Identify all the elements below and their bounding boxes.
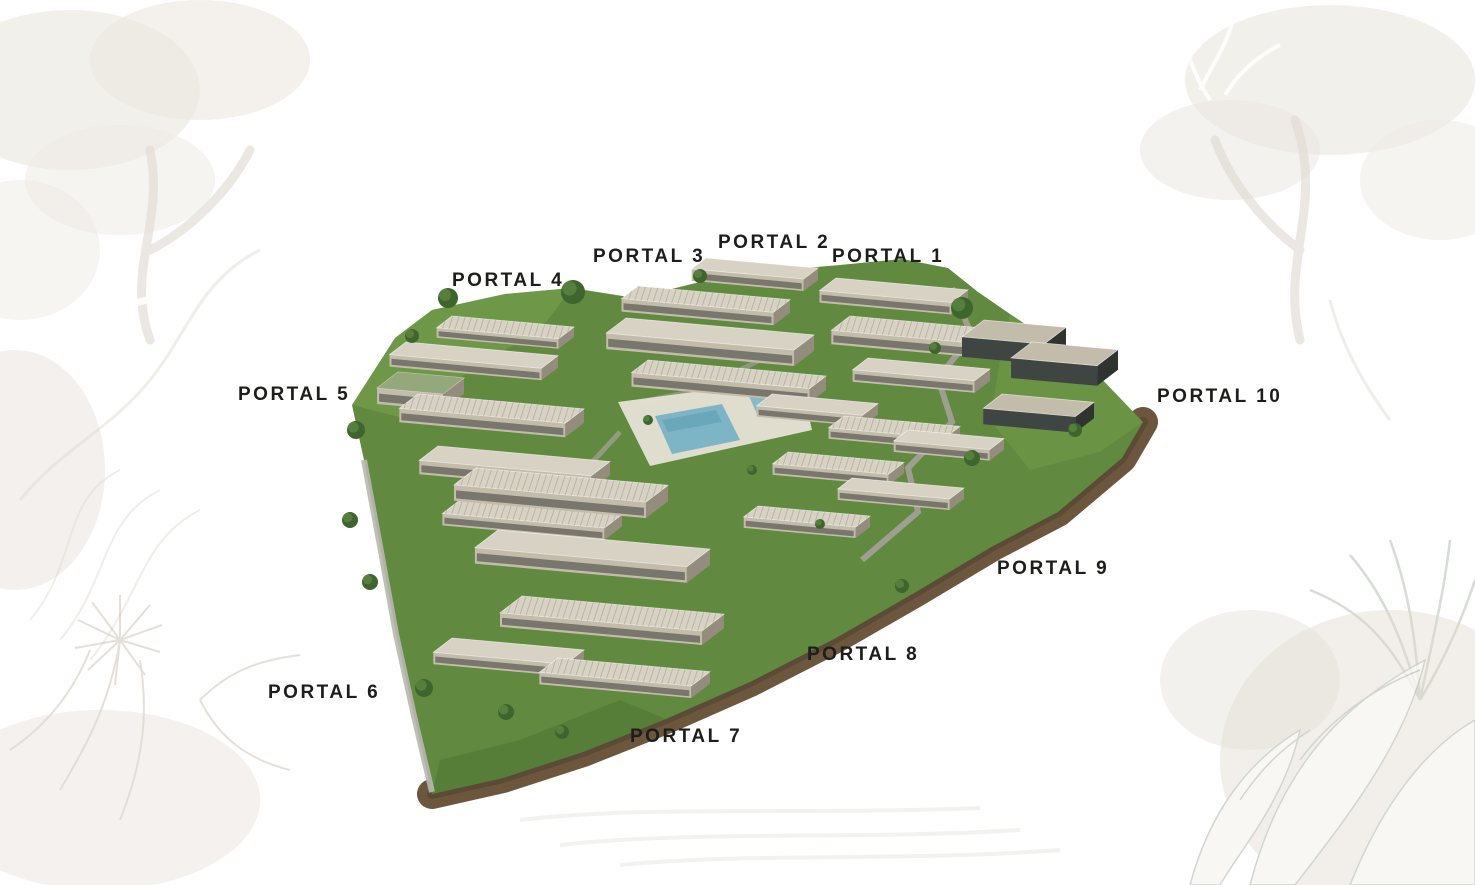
tree [405, 329, 419, 343]
portal-8-label: PORTAL 8 [807, 644, 919, 666]
tree [555, 725, 569, 739]
tree-canopy [644, 416, 650, 422]
building-block [1011, 342, 1118, 386]
tree-canopy [348, 422, 359, 433]
tree [815, 519, 825, 529]
tree-canopy [748, 466, 754, 472]
portal-1-label: PORTAL 1 [832, 246, 944, 268]
tree-canopy [343, 513, 353, 523]
tree [643, 415, 653, 425]
tree-canopy [439, 289, 451, 301]
tree-canopy [1069, 424, 1077, 432]
tree-canopy [896, 580, 904, 588]
portal-7-label: PORTAL 7 [630, 726, 742, 748]
portal-9-label: PORTAL 9 [997, 558, 1109, 580]
tree [1068, 423, 1082, 437]
tree-canopy [965, 451, 975, 461]
tree [964, 450, 980, 466]
tree [951, 297, 973, 319]
tree-canopy [556, 726, 564, 734]
masterplan-image: PORTAL 1 PORTAL 2 PORTAL 3 PORTAL 4 PORT… [0, 0, 1475, 885]
portal-3-label: PORTAL 3 [593, 246, 705, 268]
tree [362, 574, 378, 590]
portal-6-label: PORTAL 6 [268, 682, 380, 704]
tree [347, 421, 365, 439]
tree-canopy [363, 575, 373, 585]
tree [415, 679, 433, 697]
tree [895, 579, 909, 593]
tree [342, 512, 358, 528]
tree-canopy [416, 680, 427, 691]
tree-canopy [562, 281, 576, 295]
tree [498, 704, 514, 720]
site-render [0, 0, 1475, 885]
tree [929, 342, 941, 354]
tree-canopy [499, 705, 509, 715]
tree-canopy [930, 343, 937, 350]
tree-canopy [816, 520, 822, 526]
portal-2-label: PORTAL 2 [718, 232, 830, 254]
portal-5-label: PORTAL 5 [238, 384, 350, 406]
tree-canopy [952, 298, 965, 311]
tree [693, 269, 707, 283]
tree [561, 280, 585, 304]
tree-canopy [406, 330, 414, 338]
tree-canopy [694, 270, 702, 278]
portal-10-label: PORTAL 10 [1157, 386, 1282, 408]
portal-4-label: PORTAL 4 [452, 270, 564, 292]
tree [747, 465, 757, 475]
